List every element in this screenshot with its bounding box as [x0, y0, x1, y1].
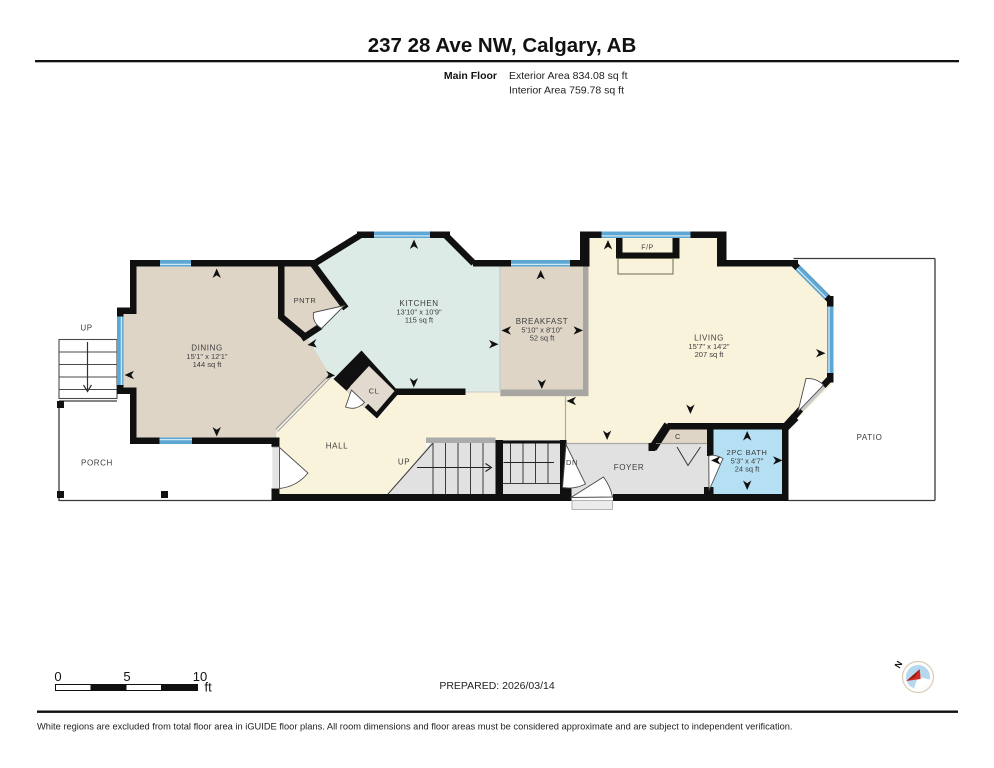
svg-text:52 sq ft: 52 sq ft: [530, 334, 556, 343]
svg-text:0: 0: [54, 669, 61, 684]
svg-text:FOYER: FOYER: [614, 463, 645, 472]
svg-text:UP: UP: [398, 458, 410, 467]
svg-text:PNTR: PNTR: [294, 296, 317, 305]
svg-text:White regions are excluded fro: White regions are excluded from total fl…: [37, 722, 793, 732]
svg-text:ft: ft: [205, 680, 213, 695]
svg-text:UP: UP: [80, 324, 92, 333]
svg-text:PREPARED: 2026/03/14: PREPARED: 2026/03/14: [439, 680, 555, 692]
svg-text:207 sq ft: 207 sq ft: [695, 350, 725, 359]
svg-text:Main Floor: Main Floor: [444, 70, 497, 82]
svg-text:PORCH: PORCH: [81, 459, 113, 468]
svg-text:N: N: [893, 659, 905, 670]
svg-text:C: C: [675, 432, 681, 441]
svg-text:24 sq ft: 24 sq ft: [735, 465, 761, 474]
svg-text:HALL: HALL: [326, 442, 348, 451]
svg-text:Exterior Area 834.08 sq ft: Exterior Area 834.08 sq ft: [509, 70, 628, 82]
svg-text:Interior Area 759.78 sq ft: Interior Area 759.78 sq ft: [509, 85, 624, 97]
svg-text:115 sq ft: 115 sq ft: [405, 316, 434, 325]
svg-text:5: 5: [123, 669, 130, 684]
svg-text:PATIO: PATIO: [857, 433, 883, 442]
svg-text:237 28 Ave NW, Calgary, AB: 237 28 Ave NW, Calgary, AB: [368, 34, 637, 57]
svg-text:DN: DN: [566, 458, 578, 467]
svg-text:F/P: F/P: [641, 245, 653, 252]
svg-text:144 sq ft: 144 sq ft: [193, 360, 223, 369]
svg-text:CL: CL: [369, 387, 380, 396]
